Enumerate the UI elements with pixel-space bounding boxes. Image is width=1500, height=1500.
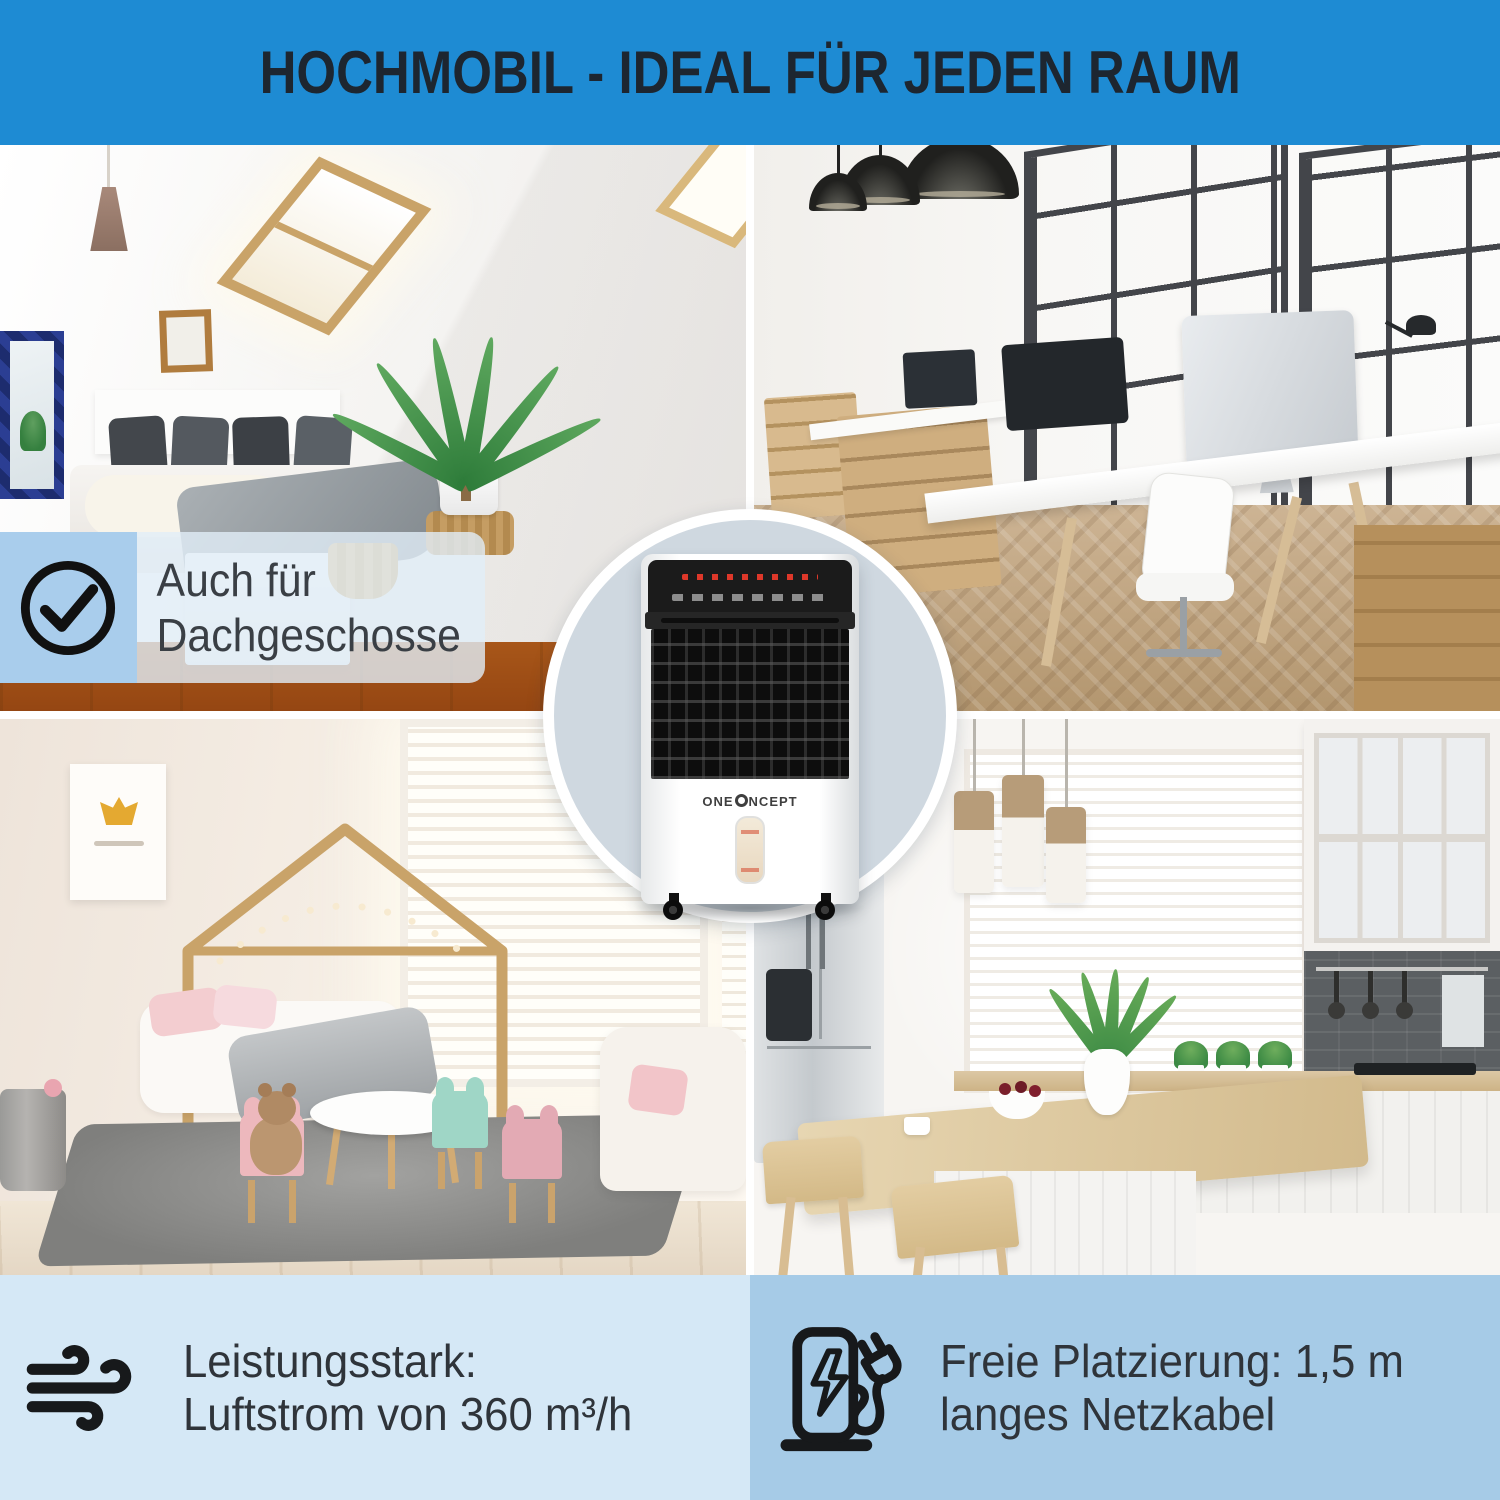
cylinder-pendant-lamp	[1002, 775, 1044, 887]
badge-line-1: Auch für	[156, 553, 460, 608]
feature-power-cord: Freie Platzierung: 1,5 m langes Netzkabe…	[750, 1275, 1500, 1500]
control-panel	[648, 560, 852, 612]
chair-leg	[289, 1180, 296, 1223]
control-buttons	[672, 594, 828, 601]
feature-airflow-text: Leistungsstark: Luftstrom von 360 m³/h	[183, 1335, 632, 1441]
page-title: HOCHMOBIL - IDEAL FÜR JEDEN RAUM	[259, 38, 1240, 107]
wind-icon	[23, 1332, 135, 1444]
feature-band: Leistungsstark: Luftstrom von 360 m³/h	[0, 1275, 1500, 1500]
kitchen-towel	[1442, 975, 1484, 1047]
product-air-cooler: ONENCEPT	[641, 554, 859, 904]
pink-pillow	[212, 984, 278, 1030]
hanging-utensil	[1368, 971, 1373, 1005]
chair-back	[432, 1091, 488, 1148]
lamp-cord	[1022, 719, 1025, 777]
chair-leg	[475, 1152, 482, 1189]
wood-cabinet	[1354, 525, 1500, 711]
air-vent-grille	[651, 629, 849, 779]
toy-bucket	[0, 1089, 66, 1191]
handle-recess	[645, 612, 855, 629]
kids-chair	[502, 1119, 562, 1223]
water-level-window	[735, 816, 765, 884]
lamp-cord	[1065, 719, 1068, 809]
table-leg	[388, 1131, 395, 1189]
upper-glass-cabinet	[1304, 719, 1500, 951]
chair-leg	[777, 1197, 795, 1275]
cylinder-pendant-lamp	[1046, 807, 1086, 903]
chair-leg	[248, 1180, 255, 1223]
chair-leg	[438, 1152, 445, 1189]
product-infographic: HOCHMOBIL - IDEAL FÜR JEDEN RAUM	[0, 0, 1500, 1500]
badge-text: Auch für Dachgeschosse	[137, 553, 461, 663]
chair-leg	[548, 1183, 555, 1223]
feature-airflow-line2: Luftstrom von 360 m³/h	[183, 1388, 632, 1441]
caster-wheel	[663, 893, 685, 919]
lamp-cord	[107, 145, 110, 189]
chair-back	[502, 1119, 562, 1179]
lamp-cord	[837, 145, 840, 175]
feature-power-line2: langes Netzkabel	[940, 1388, 1404, 1441]
brand-logo-part1: ONE	[702, 794, 733, 809]
poster-text-line	[94, 841, 144, 846]
badge-line-2: Dachgeschosse	[156, 608, 460, 663]
kids-chair	[432, 1091, 488, 1189]
monitor	[903, 349, 978, 409]
lamp-cord	[973, 719, 976, 793]
office-chair-base	[1146, 649, 1222, 657]
office-chair-pole	[1180, 597, 1187, 653]
bar-chair	[762, 1136, 864, 1205]
wall-frame	[159, 309, 213, 373]
badge-auch-fuer-dachgeschosse: Auch für Dachgeschosse	[0, 532, 485, 683]
feature-airflow-line1: Leistungsstark:	[183, 1335, 632, 1388]
badge-text-panel: Auch für Dachgeschosse	[137, 532, 485, 683]
feature-airflow: Leistungsstark: Luftstrom von 360 m³/h	[0, 1275, 750, 1500]
cooktop	[1354, 1063, 1476, 1075]
monitor	[1001, 337, 1129, 431]
coffee-cup	[904, 1117, 930, 1135]
pompom	[44, 1079, 62, 1097]
desk-lamp	[1406, 315, 1436, 335]
mirror-plant-reflection	[20, 411, 46, 451]
check-circle-icon	[16, 556, 120, 660]
teddy-bear	[250, 1117, 302, 1175]
charging-cable-icon	[780, 1323, 904, 1453]
caster-wheel	[815, 893, 837, 919]
chair-leg	[509, 1183, 516, 1223]
feature-power-line1: Freie Platzierung: 1,5 m	[940, 1335, 1404, 1388]
header-banner: HOCHMOBIL - IDEAL FÜR JEDEN RAUM	[0, 0, 1500, 145]
brand-logo: ONENCEPT	[641, 794, 859, 809]
cylinder-pendant-lamp	[954, 791, 994, 893]
armchair-pillow	[627, 1063, 689, 1116]
led-display	[682, 574, 818, 580]
teddy-bear-head	[258, 1091, 296, 1125]
product-spotlight-circle: ONENCEPT	[543, 509, 957, 923]
hanging-utensil	[1402, 971, 1407, 1005]
glass-cabinet-door	[1398, 733, 1490, 943]
fridge-dispenser	[766, 969, 812, 1041]
logo-circle-icon	[735, 794, 748, 807]
glass-cabinet-door	[1314, 733, 1406, 943]
brand-logo-part2: NCEPT	[749, 794, 798, 809]
hanging-utensil	[1334, 971, 1339, 1005]
feature-power-cord-text: Freie Platzierung: 1,5 m langes Netzkabe…	[940, 1335, 1404, 1441]
palm-plant	[395, 185, 535, 485]
badge-icon-square	[0, 532, 137, 683]
